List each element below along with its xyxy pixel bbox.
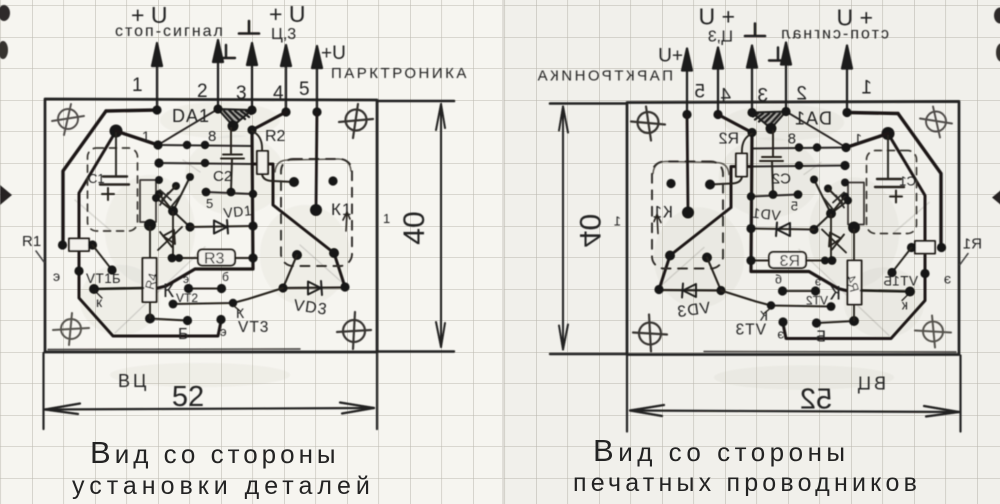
svg-text:печатных проводников: печатных проводников bbox=[573, 469, 921, 497]
svg-text:Вид со стороны: Вид со стороны bbox=[90, 435, 340, 470]
svg-text:Б: Б bbox=[112, 271, 121, 286]
svg-text:3: 3 bbox=[236, 83, 247, 104]
svg-text:э: э bbox=[53, 268, 60, 284]
svg-text:Вид со стороны: Вид со стороны bbox=[593, 433, 850, 468]
svg-text:VT2: VT2 bbox=[176, 291, 198, 305]
svg-text:VT3: VT3 bbox=[238, 319, 269, 336]
svg-text:э: э bbox=[183, 272, 189, 286]
svg-text:э: э bbox=[220, 324, 227, 339]
svg-text:VD1: VD1 bbox=[223, 202, 253, 221]
svg-text:установки деталей: установки деталей bbox=[72, 472, 375, 500]
svg-text:R1: R1 bbox=[22, 233, 41, 250]
svg-text:1: 1 bbox=[383, 211, 390, 226]
svg-text:стоп-сигнал: стоп-сигнал bbox=[115, 23, 225, 40]
svg-text:Б: Б bbox=[178, 326, 189, 343]
svg-text:4: 4 bbox=[273, 83, 284, 104]
svg-text:б: б bbox=[222, 270, 229, 284]
svg-text:C2: C2 bbox=[213, 168, 232, 185]
svg-text:R3: R3 bbox=[204, 251, 225, 268]
svg-text:52: 52 bbox=[172, 381, 204, 413]
svg-text:8: 8 bbox=[208, 128, 216, 145]
svg-text:ВЦ: ВЦ bbox=[118, 371, 149, 391]
svg-text:VT1: VT1 bbox=[86, 271, 112, 286]
svg-text:C1: C1 bbox=[88, 171, 105, 186]
svg-text:+ U: + U bbox=[269, 1, 305, 27]
svg-text:Ц,3: Ц,3 bbox=[271, 26, 296, 43]
svg-text:DA1: DA1 bbox=[172, 106, 210, 126]
svg-text:+U: +U bbox=[321, 43, 346, 64]
svg-text:R2: R2 bbox=[265, 128, 286, 145]
svg-text:5: 5 bbox=[299, 79, 310, 100]
svg-text:5: 5 bbox=[206, 196, 213, 211]
svg-text:2: 2 bbox=[197, 81, 208, 102]
svg-text:1: 1 bbox=[142, 128, 150, 144]
svg-text:40: 40 bbox=[398, 211, 431, 244]
svg-text:1: 1 bbox=[132, 75, 143, 96]
svg-text:К: К bbox=[163, 281, 174, 302]
svg-text:ПАРКТРОНИКА: ПАРКТРОНИКА bbox=[331, 65, 469, 82]
